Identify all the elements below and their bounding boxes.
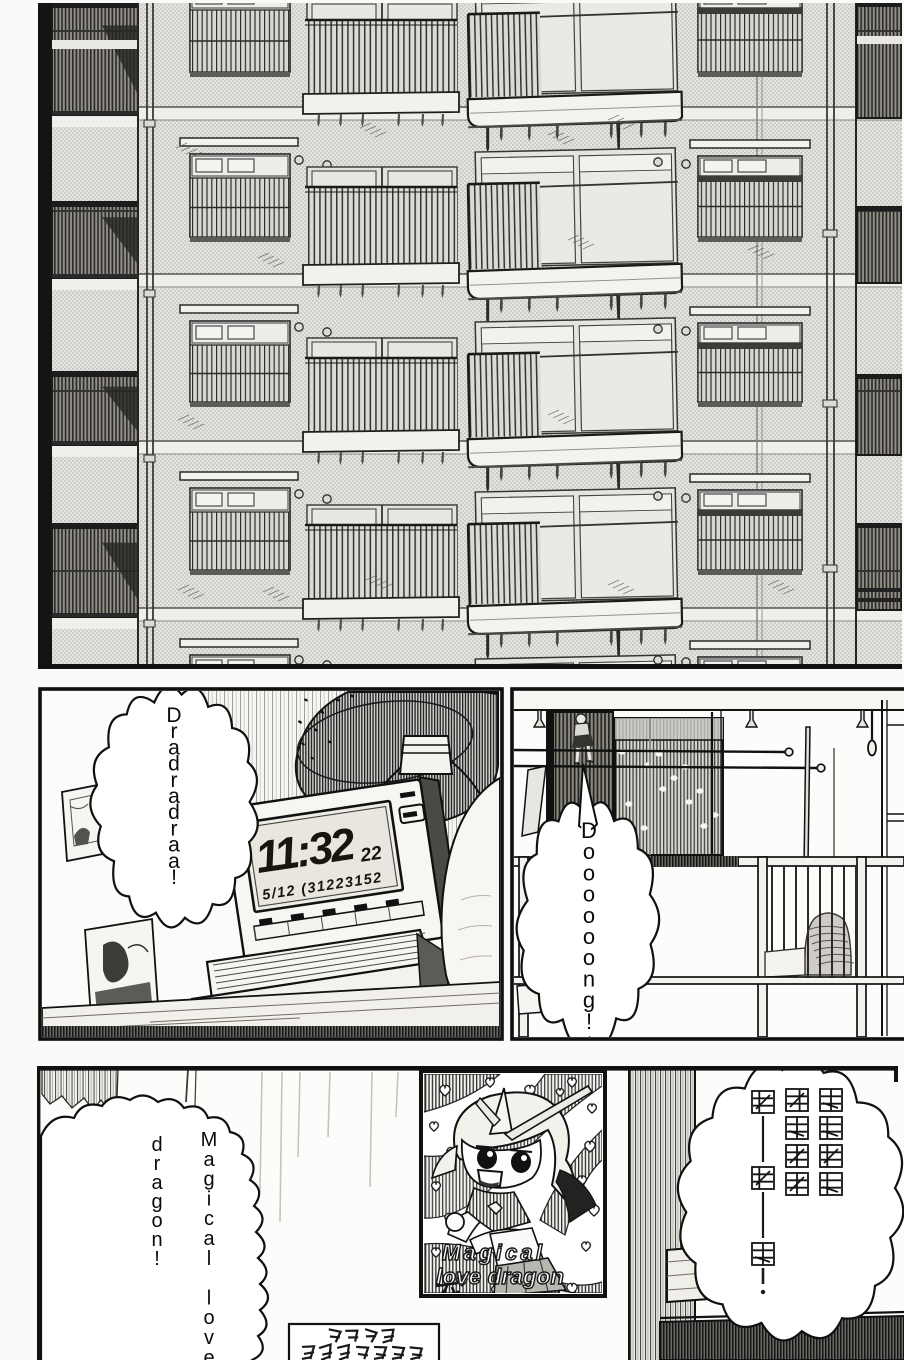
- svg-text:l: l: [207, 1248, 211, 1270]
- svg-text:!: !: [586, 1009, 592, 1034]
- svg-text:!: !: [171, 866, 177, 889]
- svg-text:i: i: [207, 1188, 211, 1210]
- svg-text:v: v: [204, 1327, 214, 1349]
- svg-text:o: o: [203, 1307, 214, 1329]
- svg-text:e: e: [203, 1347, 214, 1360]
- svg-text:!: !: [154, 1248, 160, 1270]
- svg-text:a: a: [203, 1228, 215, 1250]
- svg-text:M: M: [201, 1129, 218, 1151]
- svg-text:love dragon: love dragon: [436, 1264, 564, 1289]
- svg-text:a: a: [203, 1149, 215, 1171]
- svg-text:l: l: [207, 1287, 211, 1309]
- svg-text:c: c: [204, 1208, 214, 1230]
- svg-text:g: g: [203, 1169, 214, 1191]
- svg-text:22: 22: [358, 843, 383, 867]
